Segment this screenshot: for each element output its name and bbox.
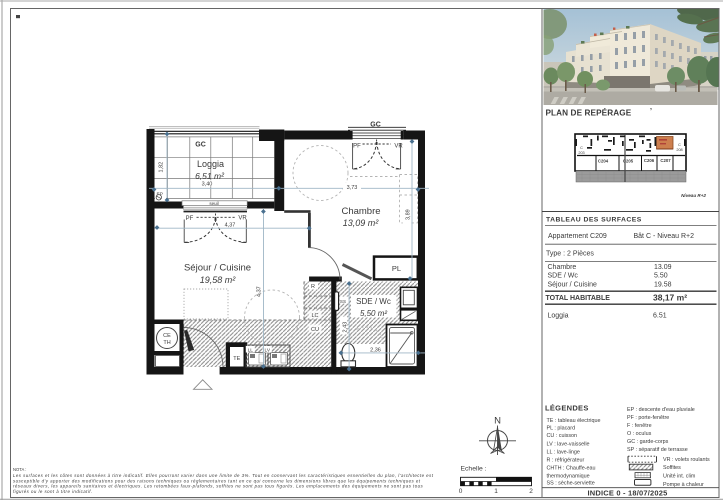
svg-text:PLAN DE REPÉRAGE: PLAN DE REPÉRAGE bbox=[546, 107, 632, 117]
svg-text:Séjour / Cuisine: Séjour / Cuisine bbox=[548, 282, 598, 289]
svg-text:’: ’ bbox=[650, 108, 652, 115]
svg-text:réseaux divers, les appareils: réseaux divers, les appareils sanitaires… bbox=[13, 484, 423, 489]
svg-text:38,17 m²: 38,17 m² bbox=[653, 293, 687, 303]
svg-text:Bât C - Niveau R+2: Bât C - Niveau R+2 bbox=[634, 233, 695, 240]
svg-text:Type : 2 Pièces: Type : 2 Pièces bbox=[546, 251, 594, 258]
svg-text:LV : lave-vaisselle: LV : lave-vaisselle bbox=[547, 441, 590, 447]
svg-text:Loggia: Loggia bbox=[548, 313, 569, 320]
svg-text:C206: C206 bbox=[644, 158, 655, 163]
svg-text:VR : volets roulants: VR : volets roulants bbox=[663, 457, 710, 463]
svg-text:SP : séparatif de terrasse: SP : séparatif de terrasse bbox=[627, 447, 688, 453]
svg-text:NOTA :: NOTA : bbox=[13, 467, 26, 472]
svg-text:VR: VR bbox=[238, 215, 247, 221]
svg-text:2: 2 bbox=[529, 488, 533, 495]
svg-text:LL : lave-linge: LL : lave-linge bbox=[547, 450, 580, 456]
svg-text:Appartement C209: Appartement C209 bbox=[548, 233, 607, 240]
svg-text:Unité int. clim: Unité int. clim bbox=[663, 474, 696, 480]
svg-text:Séjour / Cuisine: Séjour / Cuisine bbox=[184, 263, 251, 274]
svg-text:F : fenêtre: F : fenêtre bbox=[627, 423, 652, 429]
svg-text:6.51: 6.51 bbox=[653, 313, 667, 320]
svg-text:PL: PL bbox=[392, 264, 401, 273]
svg-text:1,82: 1,82 bbox=[158, 162, 164, 173]
svg-text:Chambre: Chambre bbox=[341, 206, 380, 217]
svg-text:3,89: 3,89 bbox=[405, 209, 411, 220]
svg-text:3,73: 3,73 bbox=[347, 185, 358, 191]
svg-text:TE: TE bbox=[233, 356, 240, 362]
svg-text:203: 203 bbox=[578, 151, 584, 155]
svg-text:13.09: 13.09 bbox=[654, 264, 672, 271]
svg-text:2,43: 2,43 bbox=[342, 322, 348, 333]
svg-text:5,50 m²: 5,50 m² bbox=[360, 309, 387, 318]
svg-text:LV: LV bbox=[265, 348, 271, 354]
svg-text:TABLEAU DES SURFACES: TABLEAU DES SURFACES bbox=[546, 217, 642, 224]
svg-text:PF: PF bbox=[186, 216, 194, 222]
svg-text:N: N bbox=[494, 416, 501, 427]
svg-text:SS : sèche-serviette: SS : sèche-serviette bbox=[547, 481, 595, 487]
svg-text:O : oculus: O : oculus bbox=[627, 431, 652, 437]
svg-text:R: R bbox=[311, 284, 315, 290]
svg-text:Chambre: Chambre bbox=[548, 264, 577, 271]
svg-text:Echelle :: Echelle : bbox=[461, 465, 487, 472]
svg-text:CU : cuisson: CU : cuisson bbox=[547, 433, 578, 439]
svg-text:Pompe à chaleur: Pompe à chaleur bbox=[663, 482, 704, 488]
svg-text:LC: LC bbox=[311, 313, 318, 319]
svg-text:PL : placard: PL : placard bbox=[547, 426, 576, 432]
svg-text:thermodynamique: thermodynamique bbox=[547, 474, 590, 480]
svg-text:VR: VR bbox=[394, 144, 403, 150]
svg-text:GC : garde-corps: GC : garde-corps bbox=[627, 439, 669, 445]
svg-text:PF : porte-fenêtre: PF : porte-fenêtre bbox=[627, 415, 669, 421]
svg-text:Soffites: Soffites bbox=[663, 465, 681, 471]
svg-text:0: 0 bbox=[459, 488, 463, 495]
svg-text:3,40: 3,40 bbox=[202, 182, 213, 188]
svg-text:19.58: 19.58 bbox=[654, 282, 672, 289]
svg-text:Loggia: Loggia bbox=[197, 159, 224, 169]
svg-text:SDE / Wc: SDE / Wc bbox=[356, 297, 391, 306]
svg-text:4,37: 4,37 bbox=[256, 286, 262, 297]
svg-text:CE: CE bbox=[163, 333, 171, 339]
svg-text:R : réfrigérateur: R : réfrigérateur bbox=[547, 457, 585, 463]
svg-text:TE : tableau électrique: TE : tableau électrique bbox=[547, 418, 601, 424]
svg-text:C205: C205 bbox=[623, 159, 634, 164]
svg-text:SS: SS bbox=[340, 299, 346, 304]
svg-text:INDICE 0 - 18/07/2025: INDICE 0 - 18/07/2025 bbox=[587, 489, 667, 498]
svg-text:5.50: 5.50 bbox=[654, 272, 668, 279]
svg-text:PF: PF bbox=[353, 144, 361, 150]
svg-text:figurés ou le sont à titre ind: figurés ou le sont à titre indicatif. bbox=[13, 489, 93, 494]
svg-text:TOTAL HABITABLE: TOTAL HABITABLE bbox=[546, 295, 611, 302]
svg-text:CHTH : Chauffe-eau: CHTH : Chauffe-eau bbox=[547, 465, 596, 471]
svg-text:seuil: seuil bbox=[209, 201, 218, 206]
svg-text:C204: C204 bbox=[598, 159, 609, 164]
svg-text:GC: GC bbox=[195, 142, 206, 149]
svg-text:Niveau R+2: Niveau R+2 bbox=[681, 193, 706, 198]
svg-text:Les surfaces et les côtes sont: Les surfaces et les côtes sont données à… bbox=[13, 473, 434, 478]
svg-text:1: 1 bbox=[494, 488, 498, 495]
svg-text:4,37: 4,37 bbox=[225, 223, 236, 229]
svg-text:LL: LL bbox=[248, 348, 254, 354]
svg-text:C: C bbox=[580, 146, 583, 150]
svg-text:EP : descente d'eau pluviale: EP : descente d'eau pluviale bbox=[627, 407, 695, 413]
svg-text:SDE / Wc: SDE / Wc bbox=[548, 272, 579, 279]
svg-text:C207: C207 bbox=[660, 158, 671, 163]
svg-text:CU: CU bbox=[311, 327, 319, 333]
svg-text:19,58 m²: 19,58 m² bbox=[200, 275, 237, 285]
svg-text:susceptible d'y apporter des m: susceptible d'y apporter des modificatio… bbox=[13, 478, 421, 483]
svg-text:GC: GC bbox=[370, 122, 381, 129]
svg-text:13,09 m²: 13,09 m² bbox=[343, 218, 380, 228]
svg-text:C: C bbox=[678, 143, 681, 147]
svg-text:TH: TH bbox=[163, 340, 170, 346]
svg-text:208: 208 bbox=[676, 148, 682, 152]
svg-text:6,51 m²: 6,51 m² bbox=[195, 171, 225, 181]
svg-text:LÉGENDES: LÉGENDES bbox=[545, 404, 589, 413]
svg-text:2,36: 2,36 bbox=[370, 347, 381, 353]
